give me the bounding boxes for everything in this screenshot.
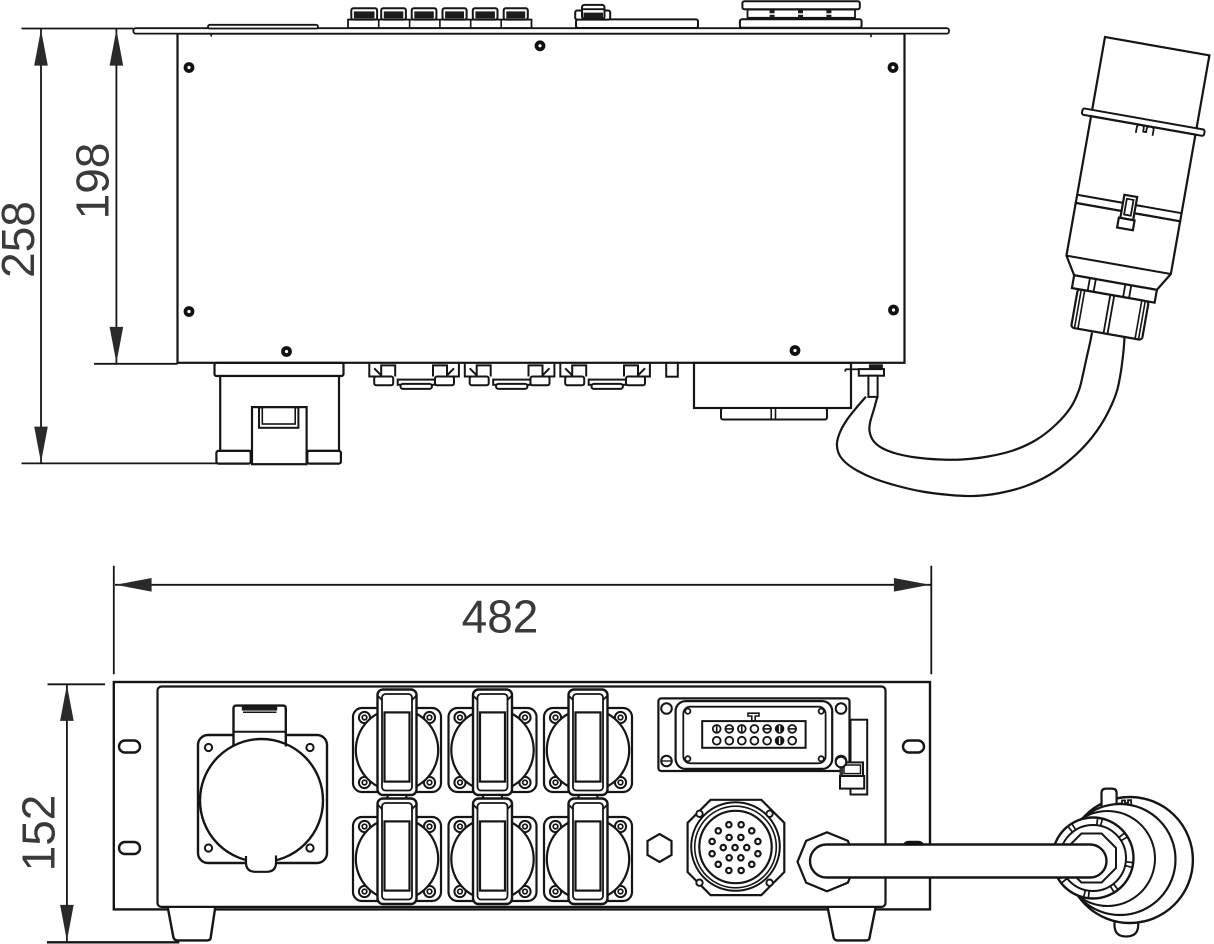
svg-text:198: 198 bbox=[67, 143, 119, 220]
svg-text:152: 152 bbox=[13, 795, 65, 872]
svg-text:482: 482 bbox=[462, 591, 539, 643]
svg-text:258: 258 bbox=[0, 201, 44, 278]
